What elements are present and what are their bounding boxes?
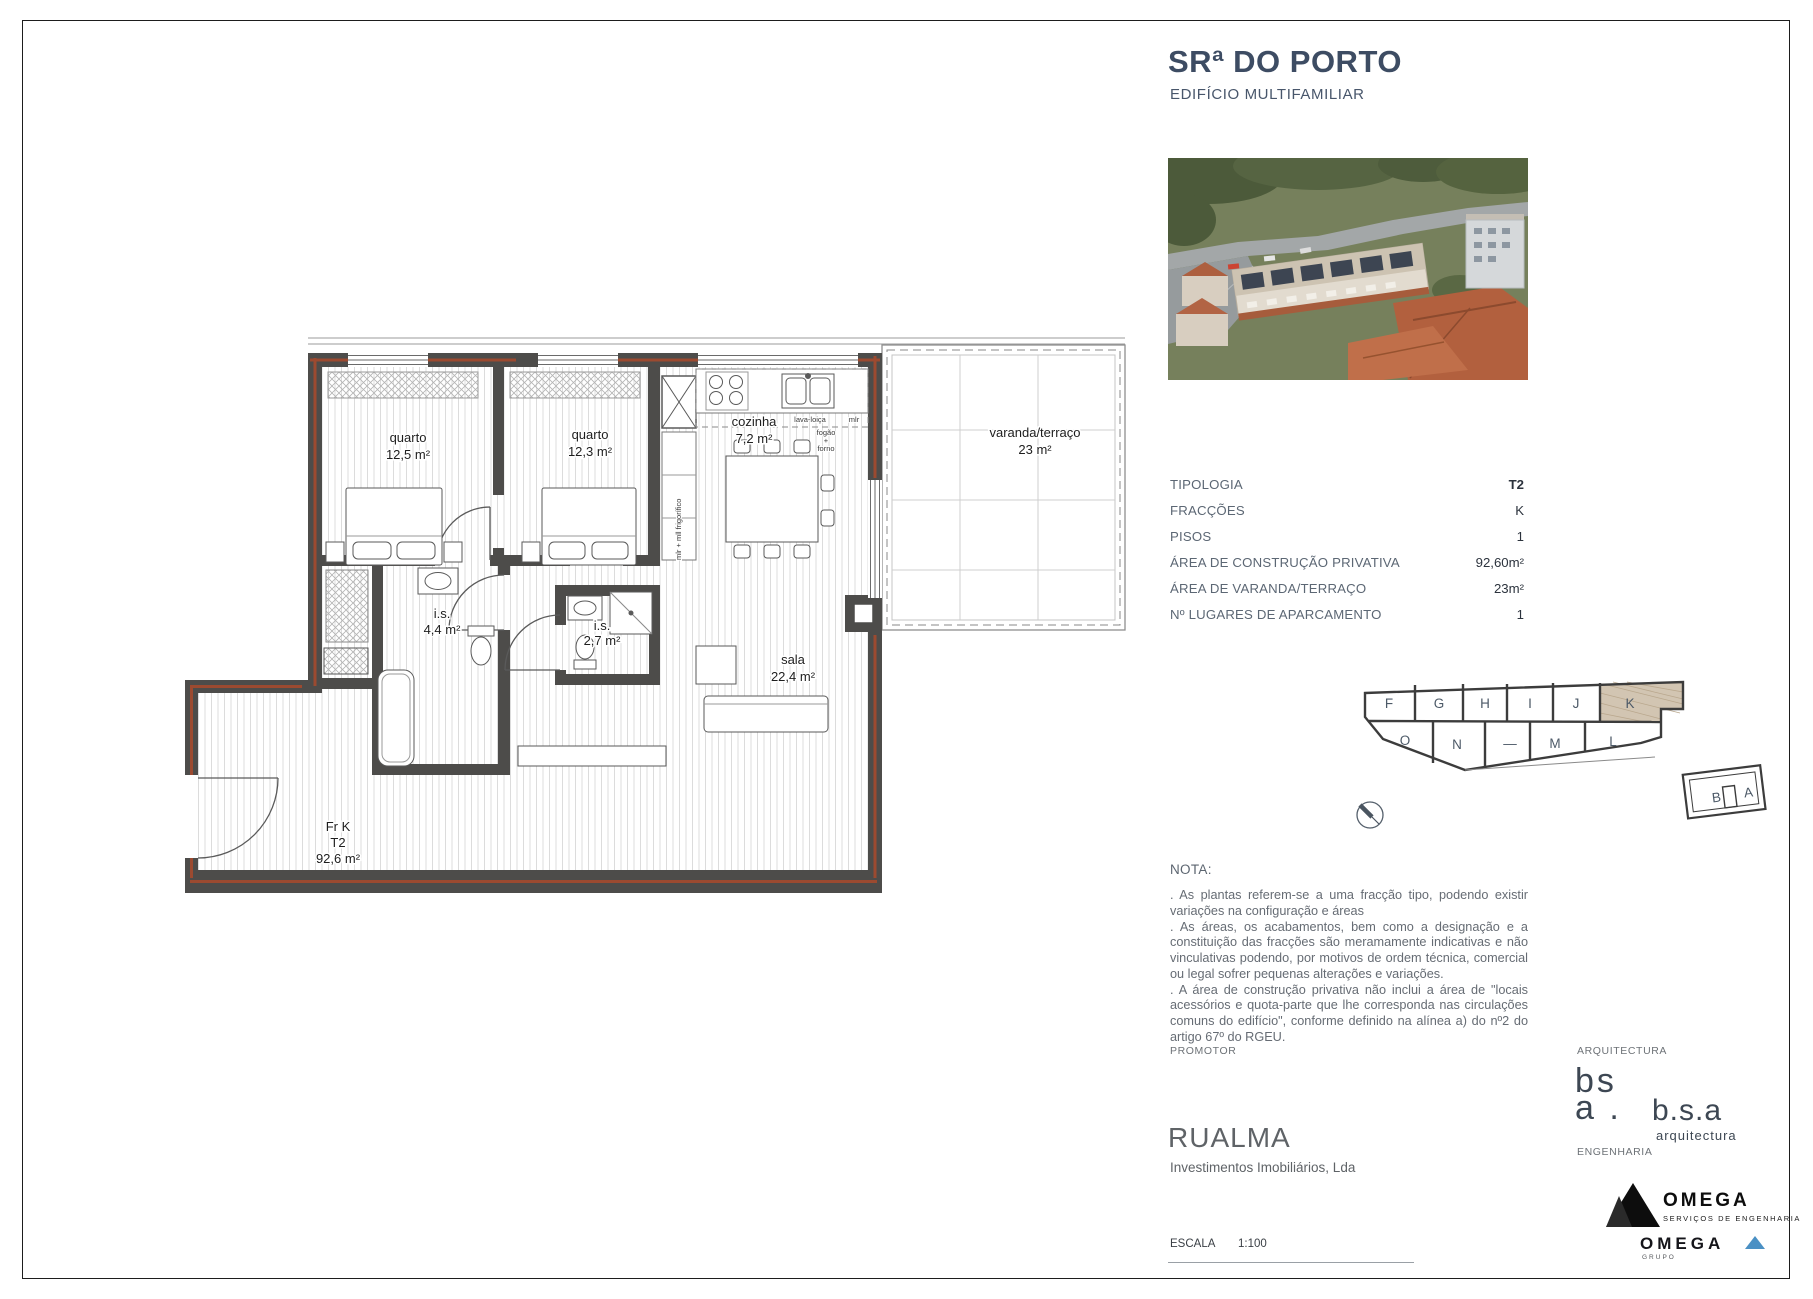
floor-plan: quarto 12,5 m² quarto 12,3 m² cozinha 7,… xyxy=(150,330,1160,910)
scale-label: ESCALA xyxy=(1170,1238,1238,1250)
drawing-sheet: quarto 12,5 m² quarto 12,3 m² cozinha 7,… xyxy=(0,0,1813,1299)
note-paragraph: . As plantas referem-se a uma fracção ti… xyxy=(1170,888,1528,920)
unit-o: O xyxy=(1400,733,1411,748)
scale-row: ESCALA 1:100 xyxy=(1170,1238,1370,1250)
project-subtitle: EDIFÍCIO MULTIFAMILIAR xyxy=(1170,86,1365,103)
unit-a: A xyxy=(1743,785,1754,801)
label-is1: i.s. xyxy=(434,606,451,621)
unit-separator: — xyxy=(1503,736,1517,751)
promoter-name: RUALMA xyxy=(1168,1122,1291,1154)
label-cozinha-area: 7,2 m² xyxy=(736,431,774,446)
entry-door-opening xyxy=(185,775,198,858)
label-unit-fraction: Fr K xyxy=(326,819,351,834)
label-sink: lava-loiça xyxy=(794,415,827,424)
spec-row-fraccoes: FRACÇÕES K xyxy=(1170,503,1524,529)
spec-value: K xyxy=(1515,503,1524,518)
omega-group-wordmark: OMEGA xyxy=(1640,1234,1724,1254)
note-paragraph: . As áreas, os acabamentos, bem como a d… xyxy=(1170,920,1528,983)
label-quarto2-area: 12,3 m² xyxy=(568,444,613,459)
closet-and-duct xyxy=(324,570,368,674)
spec-label: FRACÇÕES xyxy=(1170,503,1245,518)
note-text: . As plantas referem-se a uma fracção ti… xyxy=(1170,888,1528,1046)
label-appliances: mlr + mll frigorífico xyxy=(674,499,683,560)
bsa-logo-line2: a . xyxy=(1575,1095,1622,1122)
key-plan: F G H I J K O N — M L B A xyxy=(1345,675,1775,840)
architecture-label: ARQUITECTURA xyxy=(1577,1045,1667,1057)
label-quarto2: quarto xyxy=(572,427,609,442)
label-cozinha: cozinha xyxy=(732,414,778,429)
omega-tagline: SERVIÇOS DE ENGENHARIA xyxy=(1663,1214,1801,1223)
engineering-label: ENGENHARIA xyxy=(1577,1146,1652,1158)
spec-value: 23m² xyxy=(1494,581,1524,596)
project-title: SRª DO PORTO xyxy=(1168,44,1402,80)
spec-row-pisos: PISOS 1 xyxy=(1170,529,1524,555)
label-sala: sala xyxy=(781,652,806,667)
spec-label: Nº LUGARES DE APARCAMENTO xyxy=(1170,607,1382,622)
building-base-line xyxy=(1465,757,1655,770)
omega-group-triangle-icon xyxy=(1745,1236,1765,1249)
note-heading: NOTA: xyxy=(1170,862,1212,877)
scale-value: 1:100 xyxy=(1238,1238,1267,1250)
label-varanda: varanda/terraço xyxy=(989,425,1080,440)
unit-k: K xyxy=(1625,696,1634,711)
aerial-photo xyxy=(1168,158,1528,380)
label-quarto1: quarto xyxy=(390,430,427,445)
label-mlr: mlr xyxy=(849,415,860,424)
omega-pyramid-facet-icon xyxy=(1606,1196,1632,1227)
spec-label: PISOS xyxy=(1170,529,1211,544)
overhang-lines xyxy=(308,338,1125,344)
unit-m: M xyxy=(1549,736,1560,751)
spec-value: 92,60m² xyxy=(1476,555,1524,570)
highlighted-unit-k xyxy=(1600,682,1683,723)
label-is2-area: 2,7 m² xyxy=(584,633,622,648)
promoter-description: Investimentos Imobiliários, Lda xyxy=(1170,1160,1355,1175)
spec-label: ÁREA DE VARANDA/TERRAÇO xyxy=(1170,581,1366,596)
annex-building xyxy=(1683,765,1766,818)
promoter-label: PROMOTOR xyxy=(1170,1045,1236,1057)
bsa-field: arquitectura xyxy=(1656,1128,1737,1143)
spec-row-area-privativa: ÁREA DE CONSTRUÇÃO PRIVATIVA 92,60m² xyxy=(1170,555,1524,581)
unit-l: L xyxy=(1609,734,1617,749)
varanda-terrace xyxy=(882,345,1125,630)
spec-row-aparcamento: Nº LUGARES DE APARCAMENTO 1 xyxy=(1170,607,1524,633)
unit-n: N xyxy=(1452,737,1462,752)
keyplan-letters: F G H I J K O N — M L B A xyxy=(1385,696,1754,806)
spec-label: ÁREA DE CONSTRUÇÃO PRIVATIVA xyxy=(1170,555,1400,570)
unit-b: B xyxy=(1711,790,1722,806)
label-sala-area: 22,4 m² xyxy=(771,669,816,684)
unit-j: J xyxy=(1573,696,1580,711)
label-unit-area: 92,6 m² xyxy=(316,851,361,866)
unit-i: I xyxy=(1528,696,1532,711)
unit-f: F xyxy=(1385,696,1393,711)
note-paragraph: . A área de construção privativa não inc… xyxy=(1170,983,1528,1046)
bsa-wordmark: b.s.a xyxy=(1652,1094,1722,1128)
unit-h: H xyxy=(1480,696,1490,711)
label-is2: i.s. xyxy=(594,618,611,633)
omega-group-sub: GRUPO xyxy=(1642,1254,1676,1261)
bsa-logo: bs a . xyxy=(1575,1068,1622,1122)
spec-value: 1 xyxy=(1517,529,1524,544)
spec-label: TIPOLOGIA xyxy=(1170,477,1243,492)
spec-value: T2 xyxy=(1509,477,1524,492)
north-arrow-icon xyxy=(1357,802,1383,828)
spec-value: 1 xyxy=(1517,607,1524,622)
label-stove-3: forno xyxy=(817,444,834,453)
unit-specs: TIPOLOGIA T2 FRACÇÕES K PISOS 1 ÁREA DE … xyxy=(1170,477,1524,633)
label-quarto1-area: 12,5 m² xyxy=(386,447,431,462)
title-block-rule xyxy=(1168,1262,1414,1263)
label-unit-type: T2 xyxy=(330,835,345,850)
label-is1-area: 4,4 m² xyxy=(424,622,462,637)
label-varanda-area: 23 m² xyxy=(1018,442,1052,457)
spec-row-area-varanda: ÁREA DE VARANDA/TERRAÇO 23m² xyxy=(1170,581,1524,607)
spec-row-tipologia: TIPOLOGIA T2 xyxy=(1170,477,1524,503)
omega-wordmark: OMEGA xyxy=(1663,1190,1750,1212)
unit-g: G xyxy=(1434,696,1445,711)
